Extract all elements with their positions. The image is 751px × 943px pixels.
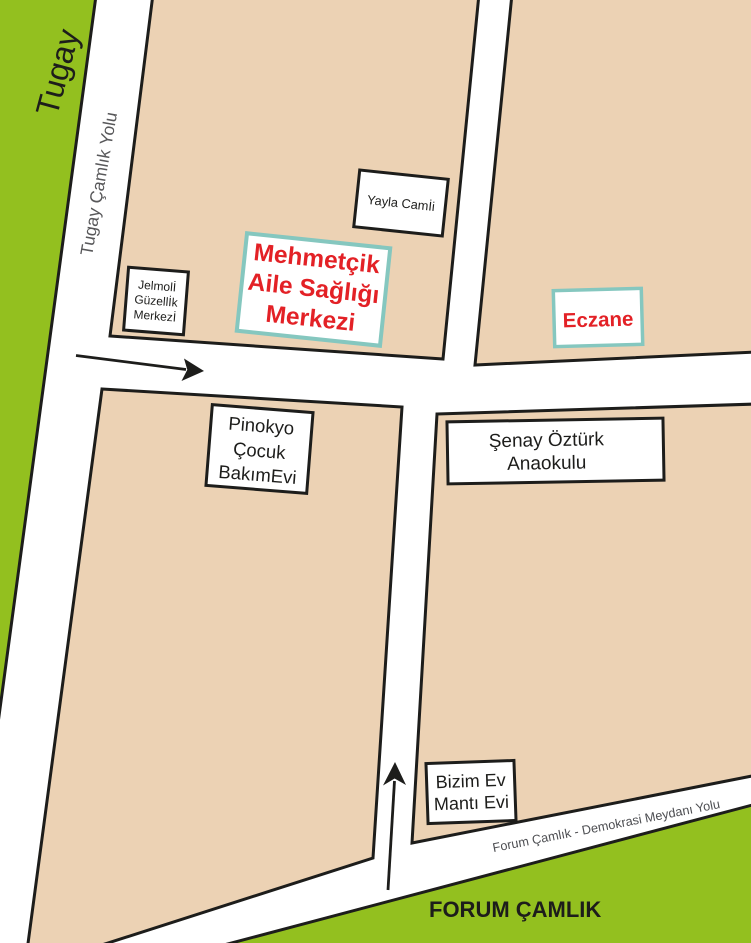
svg-text:Bizim Ev: Bizim Ev [435, 770, 506, 792]
svg-text:Eczane: Eczane [562, 308, 633, 333]
svg-text:Şenay Öztürk: Şenay Öztürk [489, 429, 605, 452]
svg-text:Çocuk: Çocuk [232, 438, 287, 463]
svg-text:Jelmolİ: Jelmolİ [138, 278, 177, 295]
svg-text:Mantı Evi: Mantı Evi [434, 792, 510, 815]
svg-text:FORUM ÇAMLIK: FORUM ÇAMLIK [429, 897, 601, 922]
svg-text:Anaokulu: Anaokulu [507, 452, 587, 474]
